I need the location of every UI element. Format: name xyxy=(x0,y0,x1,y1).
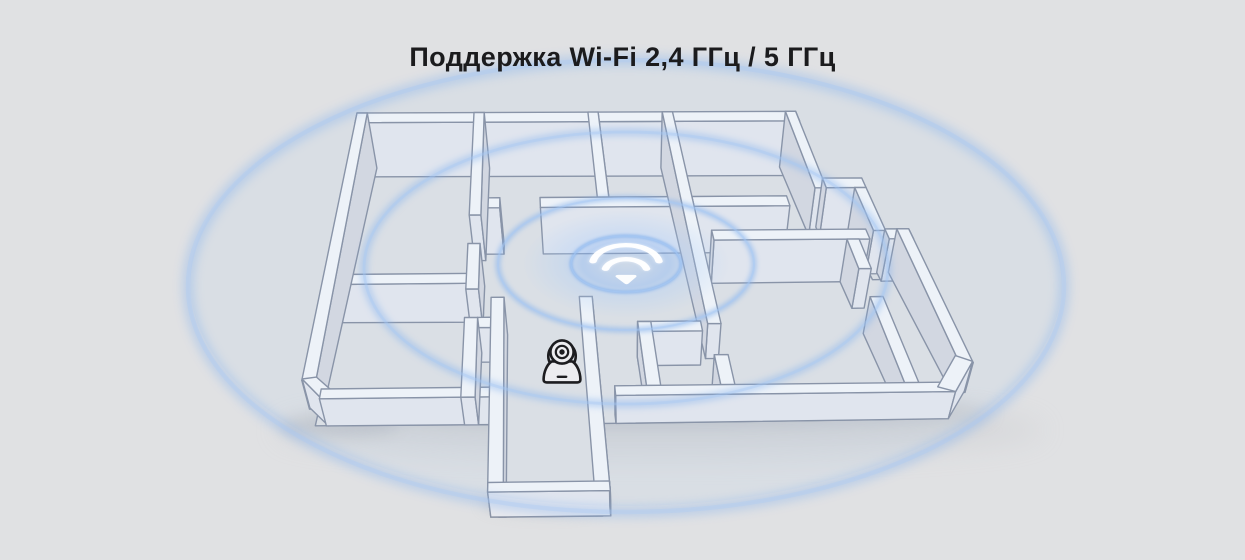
page-title: Поддержка Wi-Fi 2,4 ГГц / 5 ГГц xyxy=(0,42,1245,73)
wifi-ripple-rings xyxy=(188,58,1064,512)
floorplan-canvas xyxy=(0,0,1245,560)
camera-lens-pupil xyxy=(559,349,564,354)
promo-banner: Поддержка Wi-Fi 2,4 ГГц / 5 ГГц xyxy=(0,0,1245,560)
